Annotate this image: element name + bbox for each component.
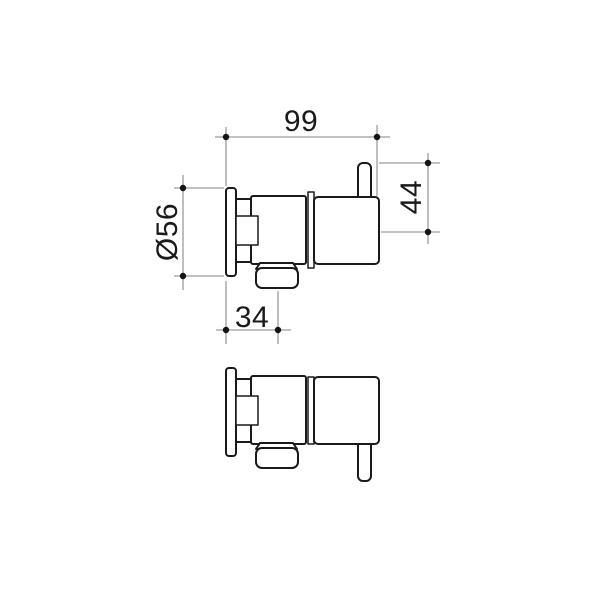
dimension-dot xyxy=(180,185,186,191)
dimension-dot xyxy=(425,160,431,166)
dimension-dot xyxy=(374,134,380,140)
cartridge-housing xyxy=(314,197,379,264)
view-bottom xyxy=(226,368,379,481)
valve-body xyxy=(251,376,306,444)
dimension-label-overall-width: 99 xyxy=(284,105,318,138)
hose-outlet-cap xyxy=(256,268,298,288)
dimension-dot xyxy=(180,273,186,279)
dimension-outlet-offset: 34 xyxy=(216,281,291,344)
dimension-dot xyxy=(223,134,229,140)
dimension-flange-diameter: Ø56 xyxy=(151,175,224,290)
fixture-top-view xyxy=(226,163,379,288)
dimension-handle-height: 44 xyxy=(379,153,440,244)
hose-outlet-cap xyxy=(256,448,298,468)
lever-handle-down xyxy=(358,440,371,481)
view-top: 99 Ø56 44 xyxy=(151,105,440,344)
inlet-port xyxy=(236,396,258,425)
drawing-svg: 99 Ø56 44 xyxy=(0,0,600,600)
dimension-dot xyxy=(223,327,229,333)
wall-flange xyxy=(226,368,236,456)
dimension-label-flange-diameter: Ø56 xyxy=(151,203,184,261)
inlet-port xyxy=(236,216,258,245)
fixture-bottom-view xyxy=(226,368,379,481)
dimension-label-handle-height: 44 xyxy=(395,180,428,214)
dimension-dot xyxy=(425,229,431,235)
cartridge-housing xyxy=(314,377,379,444)
valve-body xyxy=(251,196,306,264)
lever-handle-up xyxy=(358,163,371,201)
technical-drawing-canvas: 99 Ø56 44 xyxy=(0,0,600,600)
dimension-label-outlet-offset: 34 xyxy=(235,301,269,334)
dimension-dot xyxy=(275,327,281,333)
wall-flange xyxy=(226,188,236,276)
